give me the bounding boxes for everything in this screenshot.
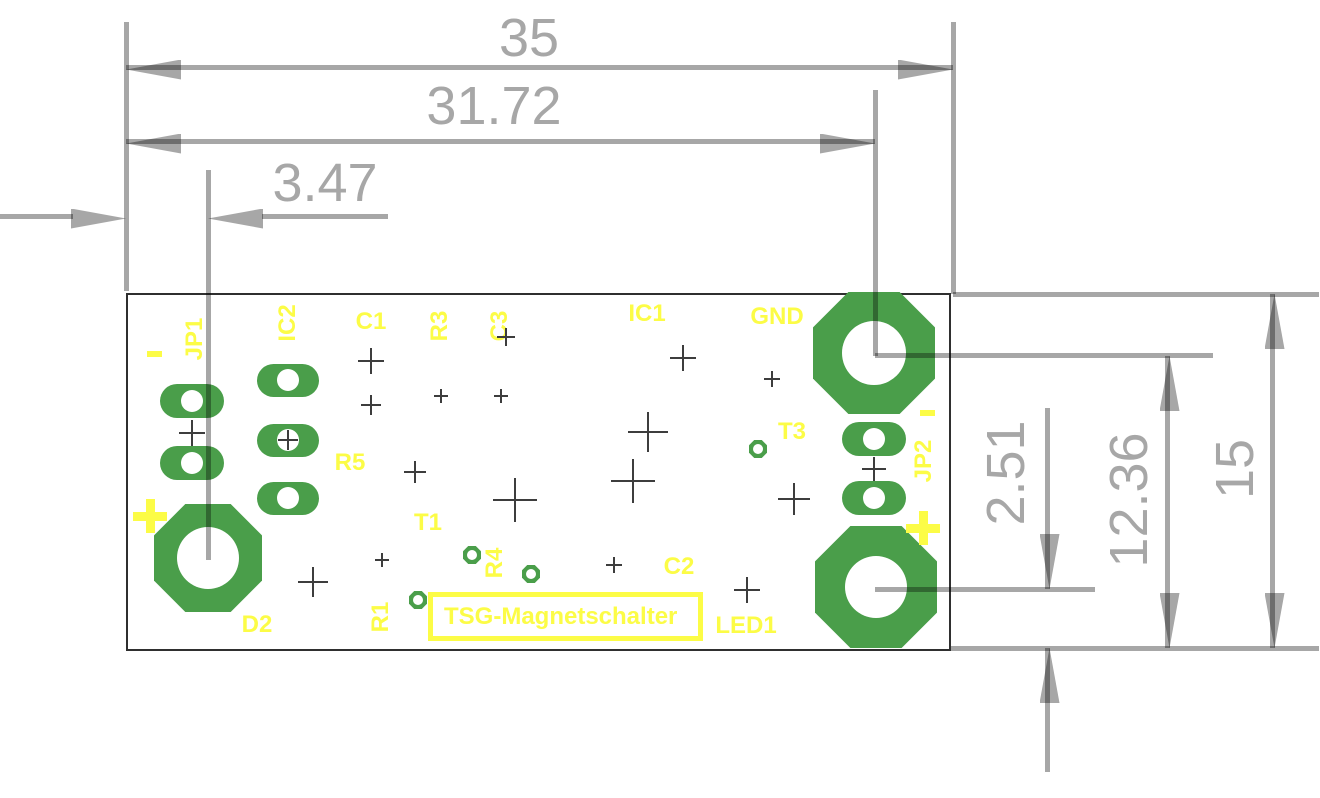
- drill-hole: [181, 390, 203, 412]
- dim-text-35: 35: [499, 11, 559, 65]
- dim-text-3-47: 3.47: [272, 156, 377, 210]
- dim-text-2-51: 2.51: [979, 420, 1033, 525]
- via-r4-b: [522, 565, 540, 583]
- cross-vertical: [632, 459, 634, 503]
- plus-vertical-bar: [146, 499, 155, 533]
- pad-jp2-2: [842, 481, 906, 515]
- dim-tail-3-47-right: [262, 214, 388, 219]
- via-hole: [413, 595, 423, 605]
- dimension-arrowhead-down: [1160, 593, 1180, 648]
- dim-line-31-72: [126, 139, 875, 144]
- cross-vertical: [191, 420, 193, 446]
- pad-ic2-3: [257, 482, 319, 515]
- dimension-arrowhead-down: [1265, 593, 1285, 648]
- dimension-arrowhead-right: [71, 209, 126, 229]
- via-hole: [753, 444, 763, 454]
- silkscreen-title-box: TSG-Magnetschalter: [428, 592, 703, 641]
- cross-vertical: [793, 483, 795, 515]
- cross-vertical: [381, 553, 383, 567]
- minus-mark-jp2: [920, 410, 935, 416]
- drill-hole: [277, 487, 299, 509]
- via-hole: [467, 550, 477, 560]
- cross-vertical: [287, 430, 289, 450]
- drill-hole: [863, 428, 885, 450]
- cross-vertical: [514, 478, 516, 522]
- ext-line-right-edge: [951, 22, 956, 294]
- via-r1: [409, 591, 427, 609]
- label-ic2: IC2: [276, 304, 300, 341]
- pad-ic2-1: [257, 364, 319, 397]
- drill-hole: [181, 452, 203, 474]
- pad-jp1-2: [160, 446, 224, 480]
- label-led1: LED1: [715, 614, 776, 638]
- label-r4: R4: [483, 548, 507, 579]
- cross-vertical: [682, 345, 684, 371]
- dim-text-31-72: 31.72: [426, 79, 561, 133]
- cross-vertical: [414, 461, 416, 483]
- dim-text-15: 15: [1208, 439, 1262, 499]
- dim-text-12-36: 12.36: [1102, 432, 1156, 567]
- ext-line-board-top: [953, 292, 1319, 297]
- label-r5: R5: [335, 451, 366, 475]
- dimension-arrowhead-up: [1265, 294, 1285, 349]
- cross-vertical: [771, 371, 773, 387]
- ext-line-gnd-right: [875, 353, 1213, 358]
- pcb-dimension-drawing: TSG-Magnetschalter JP1IC2C1R3C3IC1GNDT3J…: [0, 0, 1320, 798]
- cross-vertical: [746, 577, 748, 603]
- via-r4-a: [463, 546, 481, 564]
- label-d2: D2: [242, 613, 273, 637]
- label-gnd: GND: [750, 305, 803, 329]
- cross-vertical: [873, 457, 875, 481]
- via-hole: [526, 569, 536, 579]
- label-t3: T3: [778, 420, 806, 444]
- dimension-arrowhead-up: [1160, 356, 1180, 411]
- drill-hole: [863, 487, 885, 509]
- ext-line-d2-center: [206, 170, 211, 560]
- label-t1: T1: [414, 511, 442, 535]
- dimension-arrowhead-up: [1040, 648, 1060, 703]
- dimension-arrowhead-left: [126, 134, 181, 154]
- dimension-arrowhead-right: [820, 134, 875, 154]
- dimension-arrowhead-down: [1040, 534, 1060, 589]
- dimension-arrowhead-left: [126, 60, 181, 80]
- label-c2: C2: [664, 555, 695, 579]
- ext-line-gnd-center: [873, 90, 878, 356]
- label-ic1: IC1: [628, 302, 665, 326]
- cross-vertical: [370, 395, 372, 415]
- pad-jp2-1: [842, 422, 906, 456]
- minus-mark-jp1: [147, 351, 162, 357]
- cross-vertical: [647, 412, 649, 452]
- dimension-arrowhead-left: [208, 209, 263, 229]
- cross-vertical: [500, 389, 502, 403]
- cross-vertical: [370, 348, 372, 374]
- label-jp1: JP1: [183, 318, 207, 361]
- cross-vertical: [613, 557, 615, 573]
- board-title: TSG-Magnetschalter: [433, 603, 677, 631]
- label-r3: R3: [428, 311, 452, 342]
- drill-hole: [277, 369, 299, 391]
- ext-line-board-bottom: [951, 646, 1319, 651]
- cross-vertical: [440, 389, 442, 403]
- ext-line-left-edge: [124, 22, 129, 291]
- cross-vertical: [505, 328, 507, 346]
- cross-vertical: [312, 567, 314, 597]
- label-r1: R1: [369, 602, 393, 633]
- pad-jp1-1: [160, 384, 224, 418]
- dimension-arrowhead-right: [898, 60, 953, 80]
- ext-line-plus-right: [875, 587, 1095, 592]
- via-t3: [749, 440, 767, 458]
- label-c1: C1: [356, 310, 387, 334]
- dim-tail-3-47-left: [0, 214, 73, 219]
- label-jp2: JP2: [912, 440, 936, 483]
- plus-vertical-bar: [919, 511, 928, 545]
